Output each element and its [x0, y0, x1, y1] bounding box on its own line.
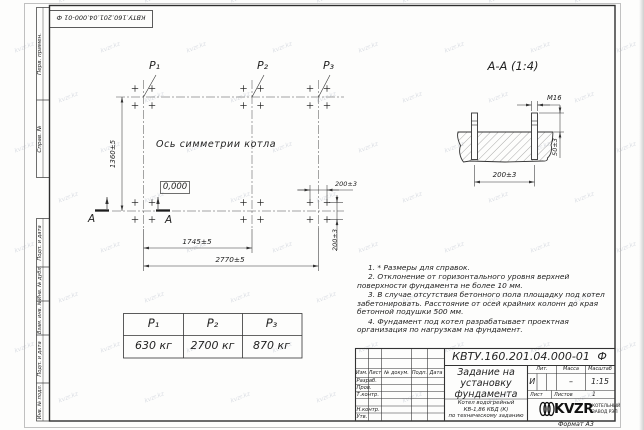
scale-value: 1:15	[586, 378, 615, 386]
dim-label-200-section: 200±3	[488, 172, 521, 179]
doc-title-line1: Задание на	[445, 368, 528, 378]
load-table-value-p2: 2700 кг	[185, 340, 240, 351]
logo-caption-line2: ЗАВОД РЭП	[592, 410, 618, 415]
drawing-sheet: kvzr.kzkvzr.kzkvzr.kzkvzr.kzkvzr.kzkvzr.…	[0, 0, 644, 430]
product-line1: Котел водогрейный	[445, 401, 528, 406]
section-cut-marks	[95, 197, 170, 211]
lit-label: Лит.	[528, 367, 557, 372]
note-3: 3. В случае отсутствия бетонного пола пл…	[357, 291, 612, 316]
sheet-label: Лист	[530, 393, 543, 398]
lit-value: И	[528, 378, 538, 386]
top-stamp-doc-number: КВТУ.160.201.04.000-01 Ф	[50, 14, 152, 21]
section-title: А-А (1:4)	[480, 61, 546, 73]
load-point-label-p3: P₃	[323, 60, 334, 71]
note-1: 1. * Размеры для справок.	[357, 264, 612, 272]
doc-number: КВТУ.160.201.04.000-01 Ф	[446, 351, 613, 362]
row-razrab: Разраб.	[357, 379, 377, 384]
anchor-bolt-right	[532, 113, 538, 160]
dim-label-1360: 1360±5	[108, 133, 118, 175]
col-podp: Подп.	[412, 371, 428, 376]
col-data: Дата	[428, 371, 445, 376]
strip-podp-data-2: Подп. и дата	[35, 336, 45, 382]
note-4: 4. Фундамент под котел разрабатывает про…	[357, 318, 612, 335]
logo-caption-line1: КОТЕЛЬНЫЙ	[592, 404, 620, 409]
col-ndokum: № докум.	[382, 371, 412, 376]
dim-label-2770: 2770±5	[210, 256, 250, 263]
thread-label-m16: М16	[547, 95, 562, 102]
sheets-label: Листов	[554, 393, 573, 398]
load-point-label-p2: P₂	[257, 60, 268, 71]
scale-label: Масштаб	[586, 367, 615, 372]
load-table-header-p3: P₃	[244, 318, 299, 330]
row-nkontr: Н.контр.	[357, 408, 380, 413]
spring-coil-icon	[540, 403, 554, 416]
doc-title-line2: установку	[445, 379, 528, 389]
row-utv: Утв.	[357, 415, 368, 420]
kvzr-logo-text: KVZR	[554, 401, 593, 417]
strip-perv-primen: Перв. примен.	[35, 11, 45, 97]
section-letter-a-right: А	[165, 215, 172, 226]
strip-vzam-inv: Взам. инв. №	[35, 302, 45, 334]
col-izm: Изм.	[355, 371, 369, 376]
product-line3: по техническому заданию	[445, 414, 528, 419]
technical-notes: 1. * Размеры для справок. 2. Отклонение …	[357, 264, 612, 336]
boiler-axis-label: Ось симметрии котла	[156, 140, 276, 150]
load-table-value-p1: 630 кг	[126, 340, 181, 351]
dim-label-50: 50±3	[550, 132, 560, 162]
mass-label: Масса	[557, 367, 586, 372]
row-prov: Пров.	[357, 386, 372, 391]
load-table-header-p2: P₂	[185, 318, 240, 330]
note-2: 2. Отклонение от горизонтального уровня …	[357, 273, 612, 290]
load-table-value-p3: 870 кг	[244, 340, 299, 351]
elevation-mark-value: 0,000	[160, 183, 190, 192]
doc-title-line3: фундамента	[445, 390, 528, 400]
plan-view-lines	[95, 75, 353, 271]
col-list: Лист	[369, 371, 382, 376]
format-label: Формат А3	[558, 422, 594, 428]
load-point-label-p1: P₁	[149, 60, 160, 71]
strip-podp-data-1: Подп. и дата	[35, 220, 45, 266]
mass-value: –	[557, 378, 586, 386]
anchor-bolt-left	[472, 113, 478, 160]
section-letter-a-left: А	[88, 214, 95, 225]
anchor-bolt-marks	[132, 85, 330, 222]
strip-sprav-no: Справ. №	[35, 103, 45, 175]
row-tkontr: Т.контр.	[357, 393, 379, 398]
load-table-header-p1: P₁	[126, 318, 181, 330]
strip-inv-dubl: Инв. № дубл.	[35, 268, 45, 300]
dim-label-bolt-x: 200±3	[330, 181, 362, 188]
dim-label-1745: 1745±5	[177, 238, 217, 245]
strip-inv-podl: Инв. № подл.	[35, 384, 45, 420]
sheets-value: 1	[592, 392, 596, 398]
dim-label-bolt-y: 200±3	[330, 223, 340, 257]
